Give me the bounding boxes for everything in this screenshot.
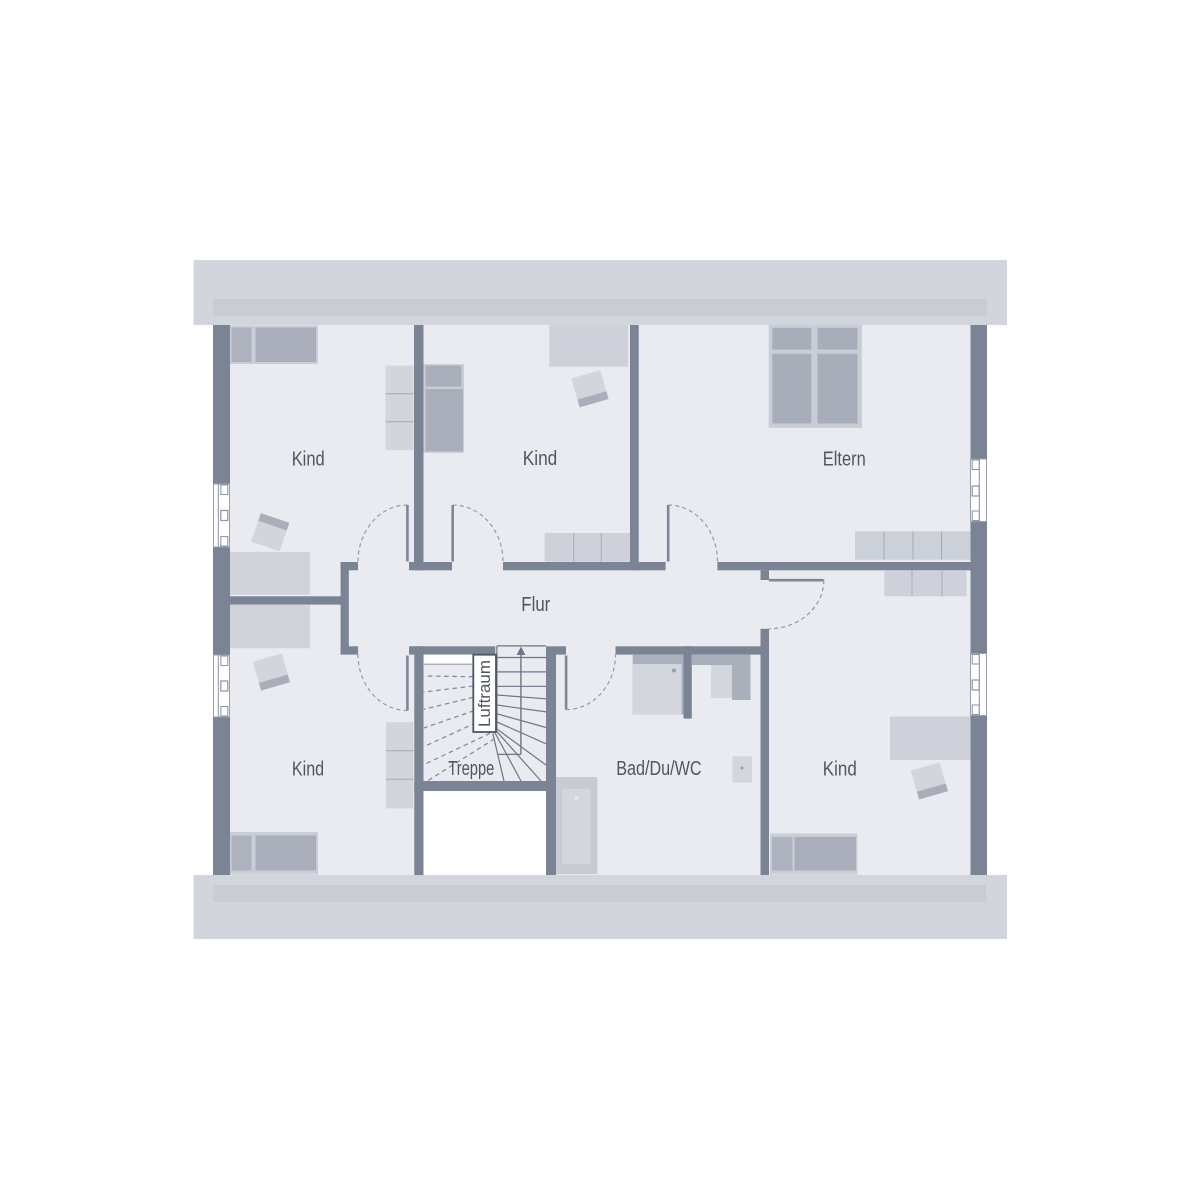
svg-text:Kind: Kind: [523, 448, 558, 470]
svg-text:Flur: Flur: [521, 594, 550, 616]
svg-text:Eltern: Eltern: [823, 449, 866, 471]
svg-text:Luftraum: Luftraum: [476, 660, 494, 727]
svg-text:Treppe: Treppe: [448, 758, 494, 780]
svg-text:Kind: Kind: [823, 758, 857, 780]
svg-text:Kind: Kind: [292, 449, 325, 471]
svg-text:Bad/Du/WC: Bad/Du/WC: [616, 758, 701, 780]
svg-text:Kind: Kind: [292, 758, 324, 780]
